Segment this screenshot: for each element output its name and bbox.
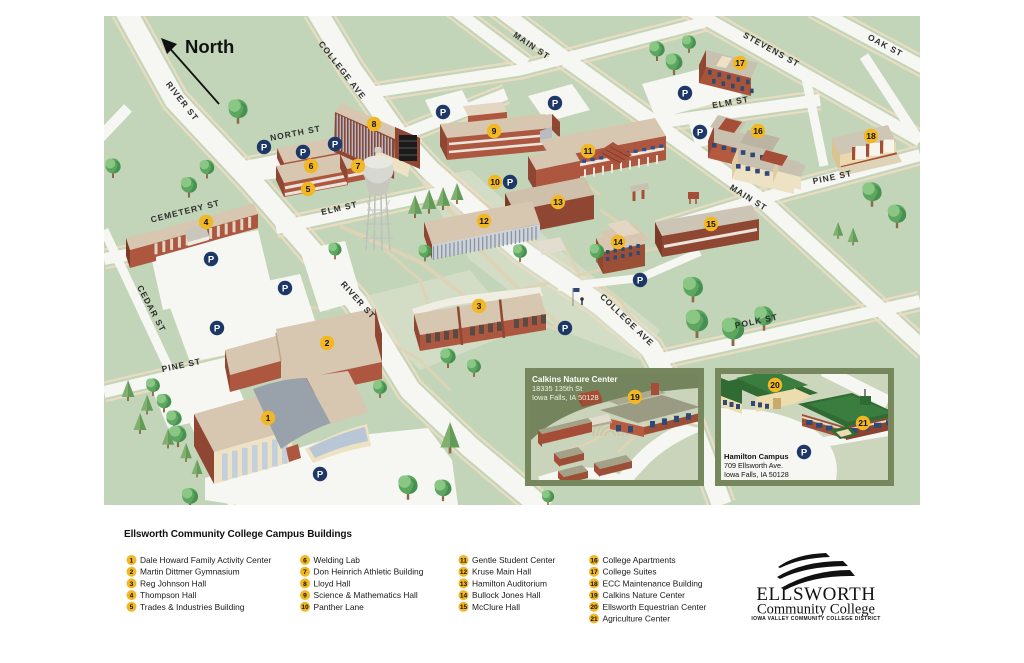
svg-text:P: P: [208, 254, 215, 265]
svg-text:P: P: [300, 147, 307, 158]
svg-text:15: 15: [460, 604, 468, 611]
svg-text:9: 9: [303, 593, 307, 600]
svg-text:5: 5: [130, 604, 134, 611]
svg-text:19: 19: [590, 593, 598, 600]
svg-text:IOWA VALLEY COMMUNITY COLLEGE: IOWA VALLEY COMMUNITY COLLEGE DISTRICT: [751, 616, 880, 622]
svg-text:McClure Hall: McClure Hall: [472, 602, 520, 612]
svg-text:3: 3: [477, 301, 482, 311]
svg-text:15: 15: [706, 219, 716, 229]
svg-text:16: 16: [590, 557, 598, 564]
svg-text:18335 135th St: 18335 135th St: [532, 384, 582, 393]
svg-text:P: P: [282, 283, 289, 294]
svg-text:709 Ellsworth Ave.: 709 Ellsworth Ave.: [724, 461, 783, 470]
svg-text:Thompson Hall: Thompson Hall: [140, 590, 196, 600]
svg-text:P: P: [507, 177, 514, 188]
svg-text:21: 21: [590, 616, 598, 623]
svg-text:Reg Johnson Hall: Reg Johnson Hall: [140, 578, 206, 588]
svg-text:12: 12: [479, 216, 489, 226]
svg-text:P: P: [562, 323, 569, 334]
svg-text:Panther Lane: Panther Lane: [314, 602, 365, 612]
svg-text:Gentle Student Center: Gentle Student Center: [472, 555, 556, 565]
svg-text:P: P: [317, 469, 324, 480]
svg-text:P: P: [801, 447, 808, 458]
svg-text:8: 8: [372, 119, 377, 129]
svg-text:4: 4: [204, 217, 209, 227]
svg-text:6: 6: [303, 557, 307, 564]
svg-text:P: P: [552, 98, 559, 109]
svg-text:Welding Lab: Welding Lab: [314, 555, 361, 565]
svg-text:2: 2: [130, 569, 134, 576]
svg-text:20: 20: [590, 604, 598, 611]
svg-text:Don Heinrich Athletic Building: Don Heinrich Athletic Building: [314, 567, 424, 577]
svg-text:5: 5: [306, 184, 311, 194]
svg-text:7: 7: [356, 161, 361, 171]
svg-text:10: 10: [301, 604, 309, 611]
svg-text:18: 18: [866, 131, 876, 141]
svg-text:P: P: [697, 127, 704, 138]
svg-text:21: 21: [858, 418, 868, 428]
svg-text:14: 14: [613, 237, 623, 247]
svg-text:1: 1: [130, 557, 134, 564]
svg-text:17: 17: [590, 569, 598, 576]
svg-text:ECC Maintenance Building: ECC Maintenance Building: [603, 578, 703, 588]
svg-text:Bullock Jones Hall: Bullock Jones Hall: [472, 590, 541, 600]
svg-text:Kruse Main Hall: Kruse Main Hall: [472, 567, 531, 577]
svg-text:Calkins Nature Center: Calkins Nature Center: [603, 590, 686, 600]
svg-text:P: P: [682, 88, 689, 99]
svg-text:18: 18: [590, 581, 598, 588]
svg-text:20: 20: [770, 380, 780, 390]
svg-text:9: 9: [492, 126, 497, 136]
svg-text:Agriculture Center: Agriculture Center: [603, 614, 671, 624]
svg-text:11: 11: [583, 146, 592, 156]
svg-text:Iowa Falls, IA 50128: Iowa Falls, IA 50128: [724, 470, 789, 479]
svg-text:4: 4: [130, 593, 134, 600]
svg-text:Calkins Nature Center: Calkins Nature Center: [532, 375, 618, 384]
svg-text:14: 14: [460, 593, 468, 600]
svg-text:6: 6: [309, 161, 314, 171]
svg-text:Hamilton Campus: Hamilton Campus: [724, 452, 789, 461]
svg-text:College Suites: College Suites: [603, 567, 657, 577]
svg-text:Ellsworth Equestrian Center: Ellsworth Equestrian Center: [603, 602, 707, 612]
svg-text:Martin Dittmer Gymnasium: Martin Dittmer Gymnasium: [140, 567, 240, 577]
svg-text:Hamilton Auditorium: Hamilton Auditorium: [472, 578, 547, 588]
svg-text:13: 13: [460, 581, 468, 588]
svg-text:13: 13: [553, 197, 563, 207]
svg-text:8: 8: [303, 581, 307, 588]
svg-text:Dale Howard Family Activity Ce: Dale Howard Family Activity Center: [140, 555, 271, 565]
svg-text:P: P: [261, 142, 268, 153]
svg-text:Ellsworth Community College Ca: Ellsworth Community College Campus Build…: [124, 529, 352, 540]
svg-text:11: 11: [460, 557, 467, 564]
svg-text:P: P: [332, 139, 339, 150]
svg-text:3: 3: [130, 581, 134, 588]
svg-text:P: P: [440, 107, 447, 118]
svg-text:Lloyd Hall: Lloyd Hall: [314, 578, 351, 588]
svg-text:Science & Mathematics Hall: Science & Mathematics Hall: [314, 590, 418, 600]
svg-text:P: P: [637, 275, 644, 286]
svg-text:College Apartments: College Apartments: [603, 555, 676, 565]
svg-text:10: 10: [490, 177, 500, 187]
svg-text:2: 2: [325, 338, 330, 348]
svg-text:1: 1: [266, 413, 271, 423]
svg-text:Trades & Industries Building: Trades & Industries Building: [140, 602, 245, 612]
svg-text:17: 17: [735, 58, 745, 68]
svg-text:P: P: [214, 323, 221, 334]
svg-text:North: North: [185, 36, 234, 57]
svg-text:16: 16: [753, 126, 763, 136]
svg-text:19: 19: [630, 392, 640, 402]
svg-text:Iowa Falls, IA 50128: Iowa Falls, IA 50128: [532, 393, 599, 402]
svg-text:7: 7: [303, 569, 307, 576]
svg-text:12: 12: [460, 569, 468, 576]
